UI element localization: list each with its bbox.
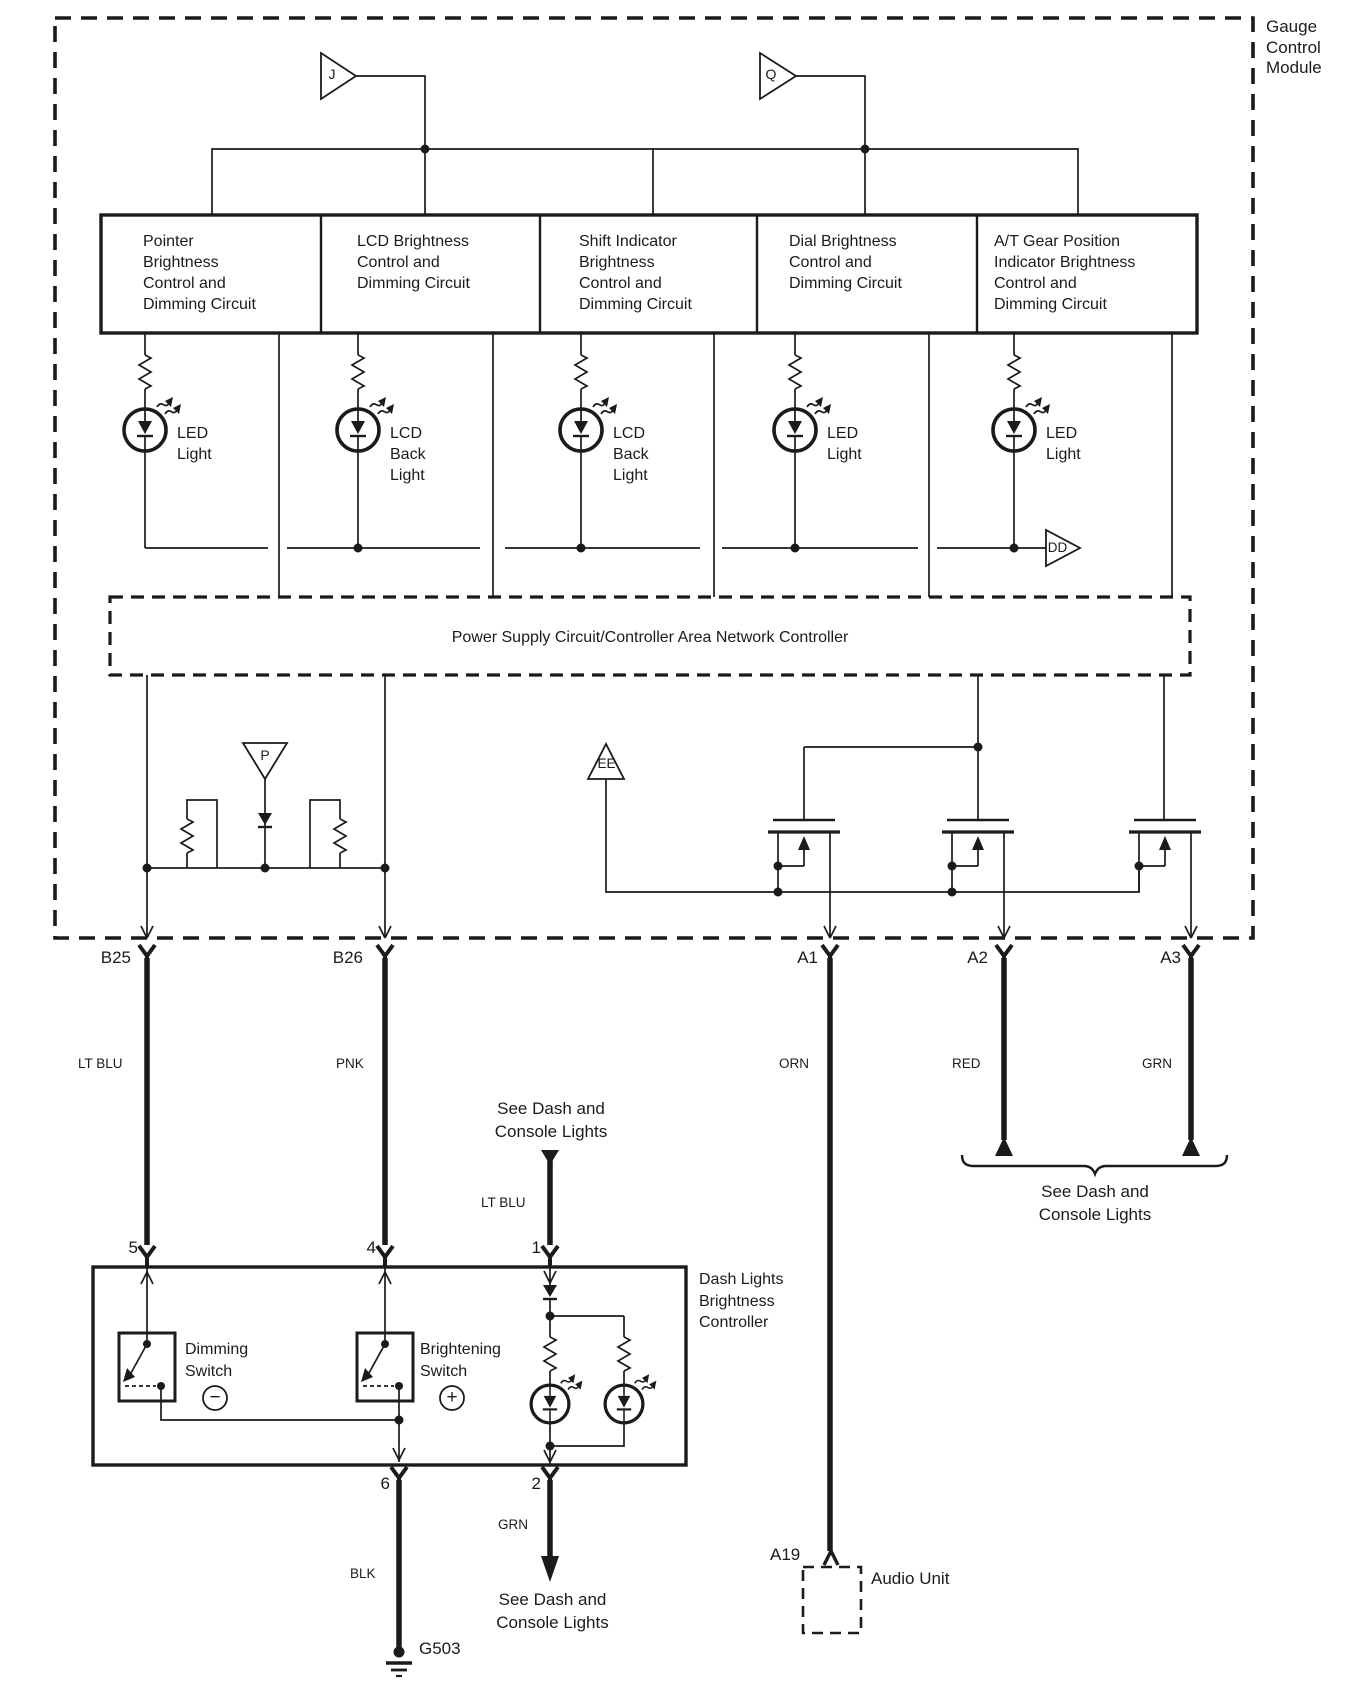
audio-pin-label: A19 xyxy=(770,1544,800,1565)
triangle-ref-j-label: J xyxy=(320,66,344,82)
controller-box xyxy=(93,1267,686,1465)
triangle-ref-ee-label: EE xyxy=(594,756,619,772)
audio-unit-label: Audio Unit xyxy=(871,1568,949,1589)
ground-label: G503 xyxy=(419,1638,461,1659)
pin-number-5: 5 xyxy=(108,1237,138,1258)
circuit-box-label: Pointer Brightness Control and Dimming C… xyxy=(143,231,256,315)
power-supply-label: Power Supply Circuit/Controller Area Net… xyxy=(110,627,1190,648)
lamp-label: LED Light xyxy=(177,423,212,465)
pin-label-b26: B26 xyxy=(311,947,363,968)
note-bracket: See Dash and Console Lights xyxy=(1014,1180,1176,1226)
grn-outgoing-wire xyxy=(541,1480,559,1582)
pin-label-a2: A2 xyxy=(936,947,988,968)
lamp-bus xyxy=(145,544,1046,553)
wiring-diagram-page: Gauge Control Module J Q P EE DD Pointer… xyxy=(0,0,1366,1689)
triangle-ref-p-label: P xyxy=(253,747,277,763)
lamp-label: LCD Back Light xyxy=(613,423,649,486)
note-see-dash-top: See Dash and Console Lights xyxy=(470,1097,632,1143)
pin-number-2: 2 xyxy=(511,1473,541,1494)
note-see-dash-bottom: See Dash and Console Lights xyxy=(470,1588,635,1634)
top-bus-wires xyxy=(212,76,1078,215)
wire-color-red: RED xyxy=(952,1056,981,1072)
controller-led-circuit xyxy=(531,1267,656,1464)
wire-color-blk: BLK xyxy=(350,1566,376,1582)
harness-wires xyxy=(147,958,1200,1551)
plus-symbol: + xyxy=(440,1386,464,1410)
wire-color-grn: GRN xyxy=(1142,1056,1172,1072)
wire-color-ltblu: LT BLU xyxy=(78,1056,123,1072)
ltblu-incoming-wire xyxy=(541,1150,559,1245)
bracket xyxy=(962,1155,1227,1174)
circuit-box-label: Shift Indicator Brightness Control and D… xyxy=(579,231,692,315)
pin-label-a1: A1 xyxy=(766,947,818,968)
controller-title: Dash Lights Brightness Controller xyxy=(699,1269,784,1334)
lamp-columns xyxy=(124,333,1050,548)
dimmer-subcircuit xyxy=(143,675,390,936)
pin-label-a3: A3 xyxy=(1129,947,1181,968)
lamp-label: LED Light xyxy=(1046,423,1081,465)
pin-number-6: 6 xyxy=(360,1473,390,1494)
wire-color-pnk: PNK xyxy=(336,1056,364,1072)
wire-color-orn: ORN xyxy=(779,1056,809,1072)
ground-wire xyxy=(386,1480,412,1676)
wire-color-ltblu-in: LT BLU xyxy=(481,1195,526,1211)
minus-symbol: − xyxy=(203,1386,227,1410)
pin-label-b25: B25 xyxy=(79,947,131,968)
module-border xyxy=(55,18,1253,938)
circuit-box-label: Dial Brightness Control and Dimming Circ… xyxy=(789,231,902,294)
lamp-label: LED Light xyxy=(827,423,862,465)
wire-color-grn-out: GRN xyxy=(498,1517,528,1533)
triangle-ref-q-label: Q xyxy=(759,66,783,82)
module-title: Gauge Control Module xyxy=(1266,17,1322,79)
lamp-label: LCD Back Light xyxy=(390,423,426,486)
circuit-box-label: LCD Brightness Control and Dimming Circu… xyxy=(357,231,470,294)
output-transistors xyxy=(606,675,1201,938)
dimming-switch-label: Dimming Switch xyxy=(185,1339,248,1382)
pin-number-4: 4 xyxy=(346,1237,376,1258)
connector-row xyxy=(139,945,1199,965)
triangle-ref-dd-label: DD xyxy=(1044,540,1071,556)
circuit-box-label: A/T Gear Position Indicator Brightness C… xyxy=(994,231,1194,315)
pin-number-1: 1 xyxy=(511,1237,541,1258)
brightening-switch-label: Brightening Switch xyxy=(420,1339,501,1382)
audio-unit-symbol xyxy=(803,1551,861,1633)
